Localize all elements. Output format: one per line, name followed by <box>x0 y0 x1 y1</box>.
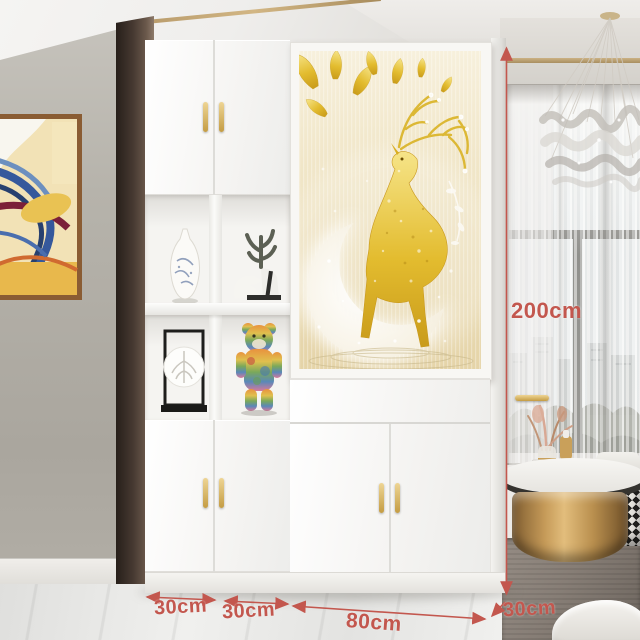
door-seam <box>213 420 215 572</box>
open-shelves <box>145 195 290 420</box>
door-handle <box>203 478 208 508</box>
door-seam <box>213 40 215 195</box>
screen-panel-art <box>299 51 481 369</box>
table-top <box>500 458 640 494</box>
lower-left-doors <box>145 420 290 572</box>
crystal-chandelier <box>515 0 640 200</box>
width-dimension-label: 30cm <box>221 599 275 625</box>
depth-dimension-label: 30cm <box>502 597 556 623</box>
drawer-handle <box>515 395 549 401</box>
upper-cabinet-doors <box>145 40 290 195</box>
center-lower-cabinet <box>290 378 490 572</box>
height-dimension-label: 200cm <box>511 298 582 324</box>
gold-coffee-table <box>512 492 628 562</box>
branch-decor-figurine <box>227 221 289 305</box>
framed-leaf-decor <box>157 327 211 417</box>
door-handle <box>219 478 224 508</box>
bear-art-toy <box>231 319 287 417</box>
door-handle <box>395 483 400 513</box>
width-dimension-label: 80cm <box>345 609 402 637</box>
cabinet-seam <box>290 378 490 380</box>
door-seam <box>389 424 391 572</box>
door-handle <box>379 483 384 513</box>
abstract-wall-painting <box>0 114 82 300</box>
door-handle <box>203 102 208 132</box>
divider-cabinet <box>143 36 507 592</box>
cabinet-side-panel <box>490 38 506 588</box>
product-photo: 200cm 30cm 30cm 80cm 30cm <box>0 0 640 640</box>
door-handle <box>219 102 224 132</box>
shelf <box>145 303 290 315</box>
cabinet-plinth <box>145 572 505 593</box>
width-dimension-label: 30cm <box>153 595 207 621</box>
screen-panel-frame <box>290 42 492 380</box>
porcelain-vase <box>163 227 207 305</box>
